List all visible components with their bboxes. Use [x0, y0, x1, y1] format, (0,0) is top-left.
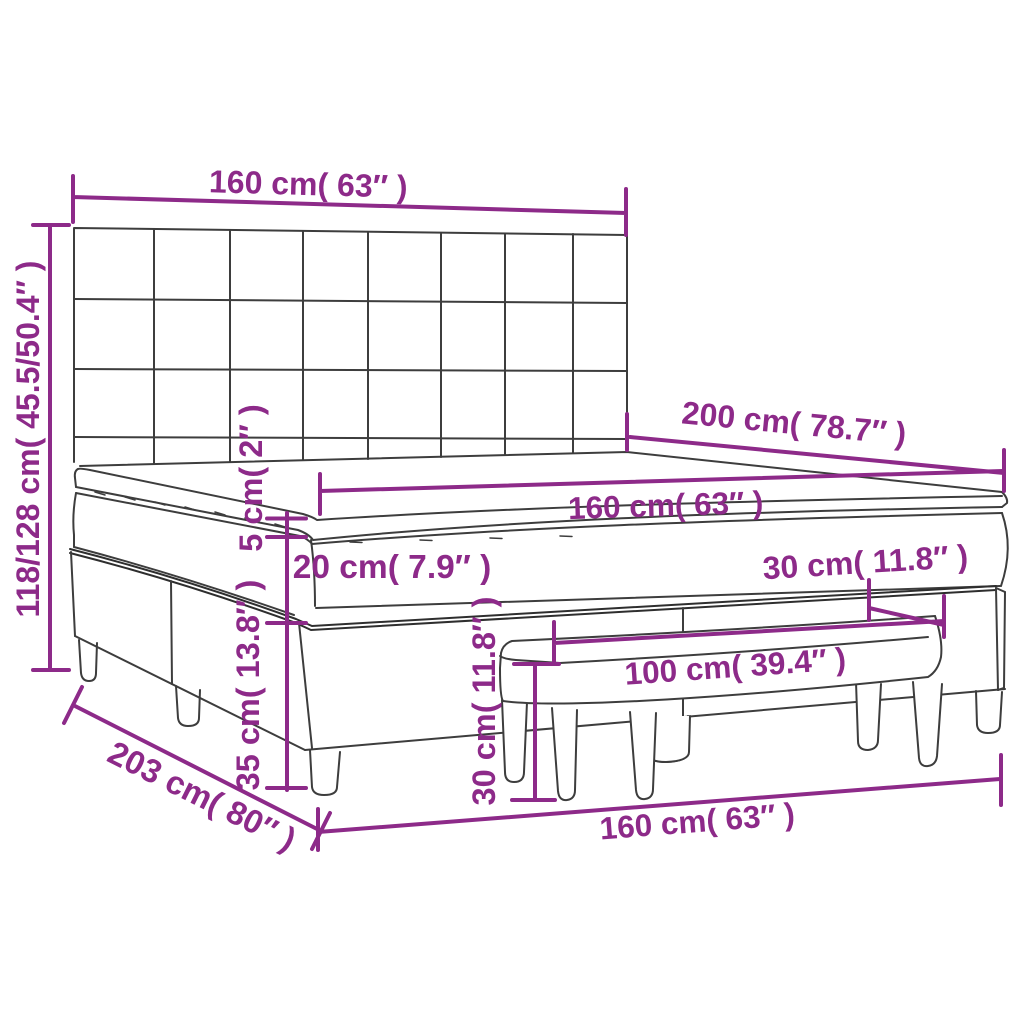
svg-text:30 cm( 11.8″ ): 30 cm( 11.8″ ) — [466, 597, 502, 806]
svg-text:160 cm( 63″ ): 160 cm( 63″ ) — [567, 484, 763, 526]
svg-text:35 cm( 13.8″ ): 35 cm( 13.8″ ) — [230, 580, 266, 791]
svg-text:203 cm( 80″ ): 203 cm( 80″ ) — [102, 733, 302, 857]
svg-text:30 cm( 11.8″ ): 30 cm( 11.8″ ) — [762, 538, 969, 586]
svg-text:118/128 cm( 45.5/50.4″ ): 118/128 cm( 45.5/50.4″ ) — [10, 261, 46, 618]
svg-text:5 cm( 2″ ): 5 cm( 2″ ) — [233, 404, 269, 551]
svg-text:160 cm( 63″ ): 160 cm( 63″ ) — [598, 796, 796, 847]
svg-text:20 cm( 7.9″ ): 20 cm( 7.9″ ) — [293, 549, 492, 586]
svg-text:160 cm( 63″ ): 160 cm( 63″ ) — [209, 163, 408, 205]
